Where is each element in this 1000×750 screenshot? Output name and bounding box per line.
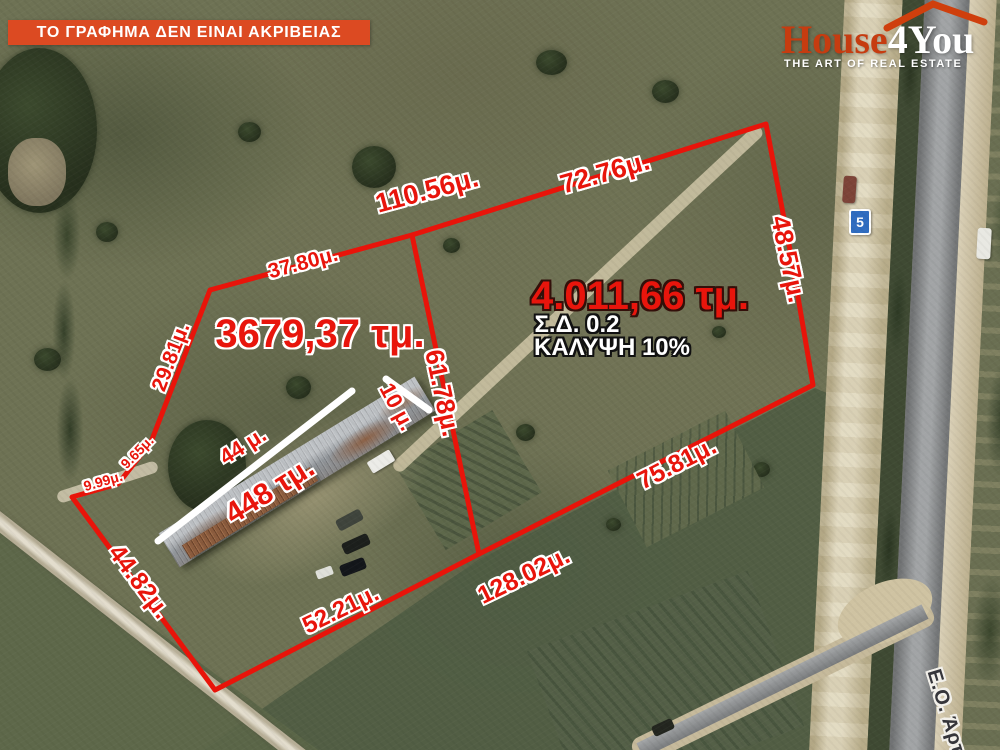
disclaimer-banner: ΤΟ ΓΡΑΦΗΜΑ ΔΕΝ ΕΙΝΑΙ ΑΚΡΙΒΕΙΑΣ bbox=[8, 20, 370, 45]
logo-you-text: You bbox=[908, 17, 975, 62]
brand-logo: House4You bbox=[781, 20, 974, 60]
coverage-label: ΚΑΛΥΨΗ 10% bbox=[534, 336, 690, 360]
satellite-listing-image: 5 110.56μ. 72.76μ. 37.80μ. 29.81μ. 9.99μ… bbox=[0, 0, 1000, 750]
logo-house-text: House bbox=[781, 17, 888, 62]
brand-tagline: THE ART OF REAL ESTATE bbox=[784, 58, 962, 70]
logo-four-text: 4 bbox=[888, 17, 908, 62]
right-plot-area-label: 4.011,66 τμ. bbox=[531, 276, 749, 316]
left-plot-area-label: 3679,37 τμ. bbox=[215, 314, 424, 354]
texture-overlay bbox=[0, 0, 1000, 750]
